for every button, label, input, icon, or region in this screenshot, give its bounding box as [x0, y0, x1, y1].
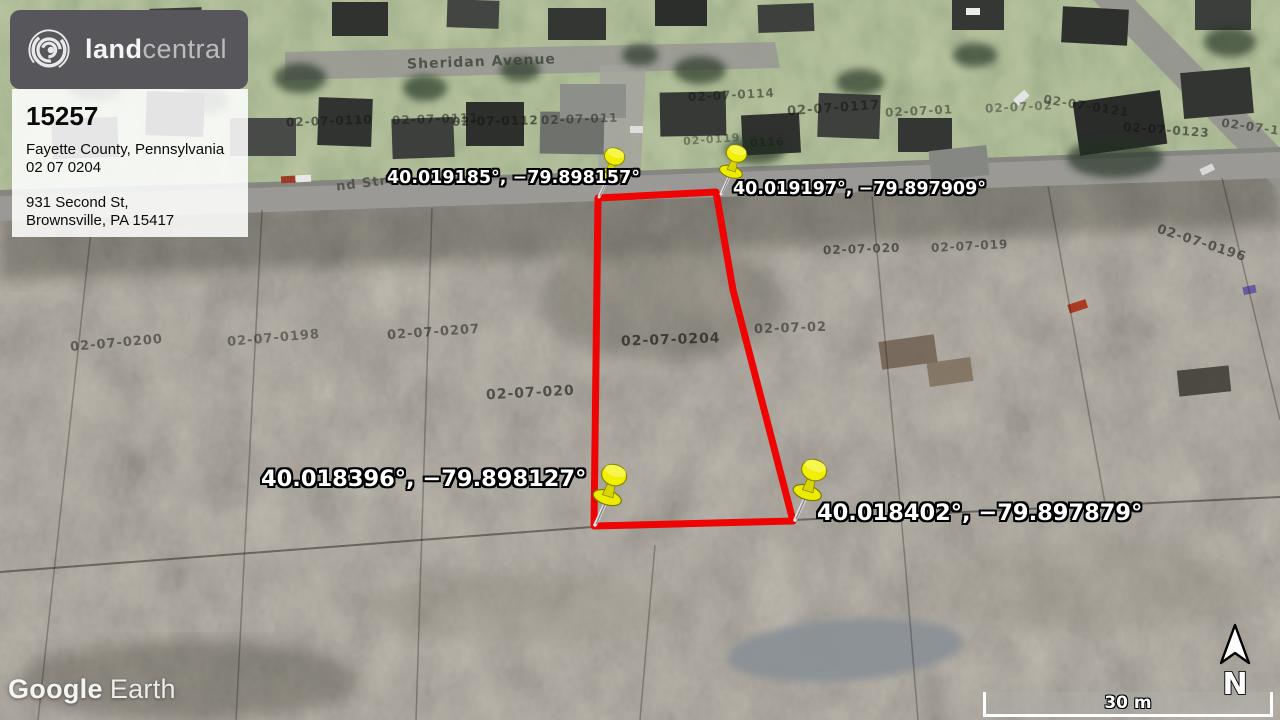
watermark-google: Google: [8, 674, 103, 704]
coordinate-label-nw: 40.019185°, −79.898157°: [387, 168, 640, 188]
google-earth-watermark: GoogleEarth: [8, 674, 176, 705]
north-compass[interactable]: N: [1212, 622, 1258, 702]
watermark-earth: Earth: [110, 674, 176, 704]
scale-label: 30 m: [1104, 693, 1151, 713]
north-arrow-icon: [1221, 625, 1249, 663]
north-letter: N: [1222, 667, 1247, 702]
coordinate-label-se: 40.018402°, −79.897879°: [817, 500, 1142, 526]
google-earth-viewport: 02-07-0110 02-07-0111 02-07-0112 02-07-0…: [0, 0, 1280, 720]
listing-id: 15257: [26, 101, 234, 132]
wordmark-land: land: [85, 34, 143, 64]
landcentral-logo-card: landcentral: [10, 10, 248, 89]
listing-apn: 02 07 0204: [26, 159, 234, 177]
listing-address-line1: 931 Second St,: [26, 194, 234, 212]
listing-county: Fayette County, Pennsylvania: [26, 141, 234, 159]
coordinate-label-ne: 40.019197°, −79.897909°: [733, 179, 986, 199]
landcentral-swirl-icon: [26, 27, 72, 73]
coordinate-label-sw: 40.018396°, −79.898127°: [261, 466, 586, 492]
listing-info-card: 15257 Fayette County, Pennsylvania 02 07…: [12, 89, 248, 237]
landcentral-wordmark: landcentral: [85, 34, 227, 65]
wordmark-central: central: [143, 34, 228, 64]
listing-address-line2: Brownsville, PA 15417: [26, 212, 234, 230]
